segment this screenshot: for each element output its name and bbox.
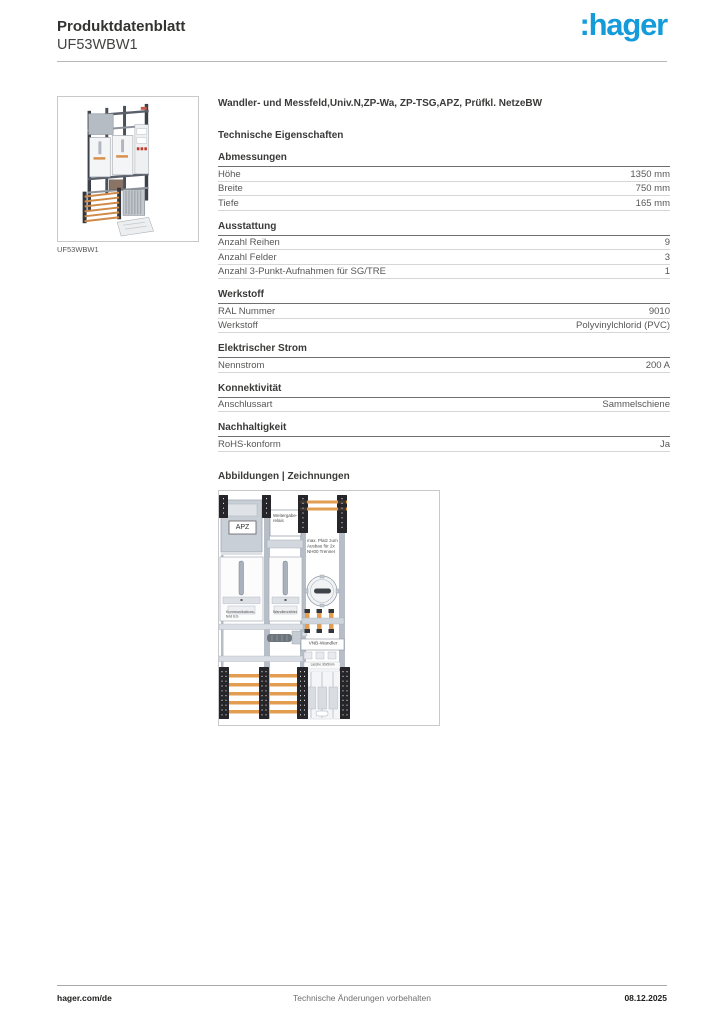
property-group-title: Konnektivität (218, 383, 670, 398)
table-row: Werkstoff Polyvinylchlorid (PVC) (218, 319, 670, 334)
table-row: Tiefe 165 mm (218, 196, 670, 211)
property-label: Nennstrom (218, 360, 264, 371)
property-group-ausstattung: Ausstattung Anzahl Reihen 9 Anzahl Felde… (218, 221, 670, 280)
property-label: Anzahl Felder (218, 252, 277, 263)
property-label: Breite (218, 183, 243, 194)
property-group-elektrischer-strom: Elektrischer Strom Nennstrom 200 A (218, 343, 670, 373)
product-image-frame (57, 96, 199, 242)
product-reference: UF53WBW1 (57, 36, 185, 54)
main-content: Wandler- und Messfeld,Univ.N,ZP-Wa, ZP-T… (218, 97, 670, 726)
footer-divider (57, 985, 667, 986)
property-group-title: Nachhaltigkeit (218, 422, 670, 437)
table-row: Höhe 1350 mm (218, 167, 670, 182)
property-label: RoHS-konform (218, 439, 281, 450)
property-group-title: Werkstoff (218, 289, 670, 304)
property-group-title: Elektrischer Strom (218, 343, 670, 358)
table-row: Anzahl 3-Punkt-Aufnahmen für SG/TRE 1 (218, 265, 670, 280)
property-value: 200 A (646, 360, 670, 371)
property-label: Anzahl 3-Punkt-Aufnahmen für SG/TRE (218, 266, 386, 277)
property-label: Werkstoff (218, 320, 258, 331)
property-label: Tiefe (218, 198, 239, 209)
property-value: 1350 mm (630, 169, 670, 180)
property-value: 9010 (649, 306, 670, 317)
doc-type-title: Produktdatenblatt (57, 18, 185, 36)
drawing-label-field-left: Kommunikations-feld EG (226, 610, 257, 619)
table-row: Anzahl Reihen 9 (218, 236, 670, 251)
table-row: Nennstrom 200 A (218, 358, 670, 373)
property-label: RAL Nummer (218, 306, 275, 317)
thumbnail-caption: UF53WBW1 (57, 245, 99, 254)
property-group-title: Ausstattung (218, 221, 670, 236)
property-label: Anzahl Reihen (218, 237, 280, 248)
drawing-label-field-mid: Wandlerzähler (273, 610, 302, 614)
footer-date: 08.12.2025 (624, 993, 667, 1004)
drawing-label-apz: APZ (229, 521, 256, 534)
table-row: RAL Nummer 9010 (218, 304, 670, 319)
property-label: Höhe (218, 169, 241, 180)
section-title-drawings: Abbildungen | Zeichnungen (218, 470, 670, 483)
table-row: Breite 750 mm (218, 182, 670, 197)
datasheet-page: Produktdatenblatt UF53WBW1 :hager (0, 0, 724, 1024)
drawing-label-max-space: max. Platz zum Ausbau für 2x NH00 Trenne… (307, 538, 342, 555)
table-row: Anzahl Felder 3 (218, 250, 670, 265)
section-title-technical: Technische Eigenschaften (218, 129, 670, 142)
property-value: Polyvinylchlorid (PVC) (576, 320, 670, 331)
drawing-label-relay: Weitergabe-relais (273, 513, 300, 523)
table-row: RoHS-konform Ja (218, 437, 670, 452)
property-value: 165 mm (636, 198, 670, 209)
drawing-label-vnb: VNB-Wandler (302, 641, 344, 646)
property-value: 750 mm (636, 183, 670, 194)
property-group-title: Abmessungen (218, 152, 670, 167)
drawing-label-lasche: Lasche 30x5mm (305, 663, 340, 667)
property-value: 3 (665, 252, 670, 263)
product-photo-svg (58, 97, 196, 239)
technical-drawing: APZ Weitergabe-relais max. Platz zum Aus… (218, 490, 440, 726)
property-group-konnektivitaet: Konnektivität Anschlussart Sammelschiene (218, 383, 670, 413)
property-group-werkstoff: Werkstoff RAL Nummer 9010 Werkstoff Poly… (218, 289, 670, 333)
footer-disclaimer: Technische Änderungen vorbehalten (57, 993, 667, 1004)
property-value: Ja (660, 439, 670, 450)
table-row: Anschlussart Sammelschiene (218, 398, 670, 413)
property-value: Sammelschiene (602, 399, 670, 410)
header: Produktdatenblatt UF53WBW1 (57, 18, 185, 54)
property-value: 9 (665, 237, 670, 248)
property-label: Anschlussart (218, 399, 272, 410)
property-group-nachhaltigkeit: Nachhaltigkeit RoHS-konform Ja (218, 422, 670, 452)
property-group-abmessungen: Abmessungen Höhe 1350 mm Breite 750 mm T… (218, 152, 670, 211)
hager-logo: :hager (579, 8, 667, 42)
header-divider (57, 61, 667, 62)
property-value: 1 (665, 266, 670, 277)
page-title: Wandler- und Messfeld,Univ.N,ZP-Wa, ZP-T… (218, 97, 670, 110)
